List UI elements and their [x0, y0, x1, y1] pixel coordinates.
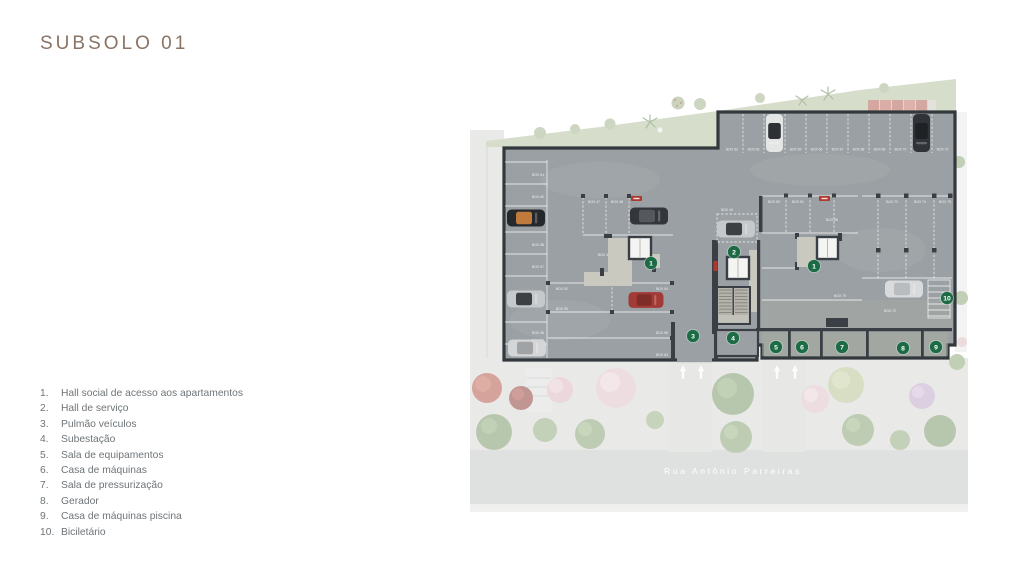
plan-marker-1b: 1 — [808, 260, 821, 273]
legend-item-number: 6. — [40, 463, 61, 478]
tree — [672, 97, 685, 110]
legend-item: 8.Gerador — [40, 494, 243, 509]
legend-item: 1.Hall social de acesso aos apartamentos — [40, 386, 243, 401]
stall-label: BOX 56 — [826, 218, 838, 222]
legend: 1.Hall social de acesso aos apartamentos… — [40, 386, 243, 540]
plan-marker-1a: 1 — [645, 257, 658, 270]
stall-label: BOX 50 — [556, 307, 568, 311]
stall-label: BOX 61 — [532, 173, 544, 177]
stall-label: BOX 62 — [726, 148, 738, 152]
car — [507, 210, 545, 227]
marker-label: 8 — [901, 345, 905, 352]
legend-item: 6.Casa de máquinas — [40, 463, 243, 478]
legend-item: 7.Sala de pressurização — [40, 478, 243, 493]
legend-item-label: Biciletário — [61, 525, 106, 540]
legend-item-number: 3. — [40, 417, 61, 432]
car — [913, 114, 930, 152]
stall-label: BOX 75 — [939, 200, 951, 204]
stall-label: BOX 63 — [748, 148, 760, 152]
car — [717, 221, 755, 238]
stall-label: BOX 48 — [611, 200, 623, 204]
marker-label: 1 — [812, 263, 816, 270]
marker-label: 3 — [691, 333, 695, 340]
legend-item-number: 9. — [40, 509, 61, 524]
legend-item-number: 4. — [40, 432, 61, 447]
stall-label: BOX 72 — [884, 309, 896, 313]
plan-marker-3: 3 — [687, 330, 700, 343]
plan-marker-10: 10 — [941, 292, 954, 305]
legend-item: 2.Hall de serviço — [40, 401, 243, 416]
staircase — [717, 287, 750, 324]
legend-item: 4.Subestação — [40, 432, 243, 447]
legend-item-number: 5. — [40, 448, 61, 463]
car — [629, 292, 664, 308]
stall-label: BOX 49 — [721, 208, 733, 212]
stall-label: BOX 52 — [556, 287, 568, 291]
stall-label: BOX 67 — [832, 148, 844, 152]
marker-label: 7 — [840, 344, 844, 351]
page-title: SUBSOLO 01 — [40, 33, 188, 55]
legend-item-label: Hall social de acesso aos apartamentos — [61, 386, 243, 401]
legend-item-label: Pulmão veículos — [61, 417, 137, 432]
stall-label: BOX 55 — [532, 331, 544, 335]
car — [630, 208, 668, 225]
legend-item-label: Hall de serviço — [61, 401, 129, 416]
legend-item-label: Sala de equipamentos — [61, 448, 163, 463]
stall-label: BOX 58 — [532, 243, 544, 247]
plan-marker-7: 7 — [836, 341, 849, 354]
stall-label: BOX 69 — [874, 148, 886, 152]
legend-item: 3.Pulmão veículos — [40, 417, 243, 432]
driveway — [668, 358, 712, 452]
stall-label: BOX 63 — [656, 353, 668, 357]
floor-plan-svg: BOX 62 BOX 63 BOX 65 BOX 66 BOX 67 BOX 6… — [466, 56, 972, 516]
stall-label: BOX 47 — [588, 200, 600, 204]
stall-label: BOX 50 — [768, 200, 780, 204]
equipment-block — [826, 318, 848, 327]
legend-item-number: 2. — [40, 401, 61, 416]
slide: SUBSOLO 01 1.Hall social de acesso aos a… — [0, 0, 1024, 576]
marker-label: 6 — [800, 344, 804, 351]
marker-label: 9 — [934, 344, 938, 351]
stall-label: BOX 74 — [914, 200, 926, 204]
legend-item-label: Casa de máquinas — [61, 463, 147, 478]
legend-item: 5.Sala de equipamentos — [40, 448, 243, 463]
stall-label: BOX 79 — [834, 294, 846, 298]
legend-item: 9.Casa de máquinas piscina — [40, 509, 243, 524]
stall-label: BOX 57 — [532, 265, 544, 269]
stall-label: BOX 54 — [656, 287, 668, 291]
plan-marker-9: 9 — [930, 341, 943, 354]
legend-item: 10.Biciletário — [40, 525, 243, 540]
stall-label: BOX 65 — [790, 148, 802, 152]
stall-label: BOX 70 — [895, 148, 907, 152]
plan-marker-5: 5 — [770, 341, 783, 354]
car — [507, 291, 545, 308]
marker-label: 10 — [943, 295, 951, 302]
legend-item-number: 7. — [40, 478, 61, 493]
legend-item-label: Gerador — [61, 494, 99, 509]
stall-label: BOX 73 — [886, 200, 898, 204]
stall-label: BOX 60 — [532, 195, 544, 199]
marker-label: 2 — [732, 249, 736, 256]
marker-label: 4 — [731, 335, 735, 342]
legend-item-number: 8. — [40, 494, 61, 509]
floor-plan: BOX 62 BOX 63 BOX 65 BOX 66 BOX 67 BOX 6… — [504, 112, 955, 362]
ramp-opening — [677, 357, 712, 362]
marker-label: 5 — [774, 344, 778, 351]
car — [766, 114, 783, 152]
legend-item-label: Casa de máquinas piscina — [61, 509, 182, 524]
plan-marker-2: 2 — [728, 246, 741, 259]
stall-label: BOX 72 — [937, 148, 949, 152]
stall-label: BOX 68 — [853, 148, 865, 152]
plan-marker-6: 6 — [796, 341, 809, 354]
stall-label: BOX 66 — [811, 148, 823, 152]
marker-label: 1 — [649, 260, 653, 267]
legend-item-label: Sala de pressurização — [61, 478, 163, 493]
legend-item-number: 10. — [40, 525, 61, 540]
driveway — [762, 358, 806, 452]
legend-item-label: Subestação — [61, 432, 115, 447]
car — [885, 281, 923, 298]
fire-cabinet — [714, 261, 718, 271]
legend-item-number: 1. — [40, 386, 61, 401]
street-label: Rua Antônio Parreiras — [664, 466, 802, 476]
stall-label: BOX 51 — [792, 200, 804, 204]
stall-label: BOX 58 — [656, 331, 668, 335]
plan-marker-4: 4 — [727, 332, 740, 345]
car — [508, 340, 546, 357]
garden-stone — [657, 127, 662, 132]
plan-marker-8: 8 — [897, 342, 910, 355]
